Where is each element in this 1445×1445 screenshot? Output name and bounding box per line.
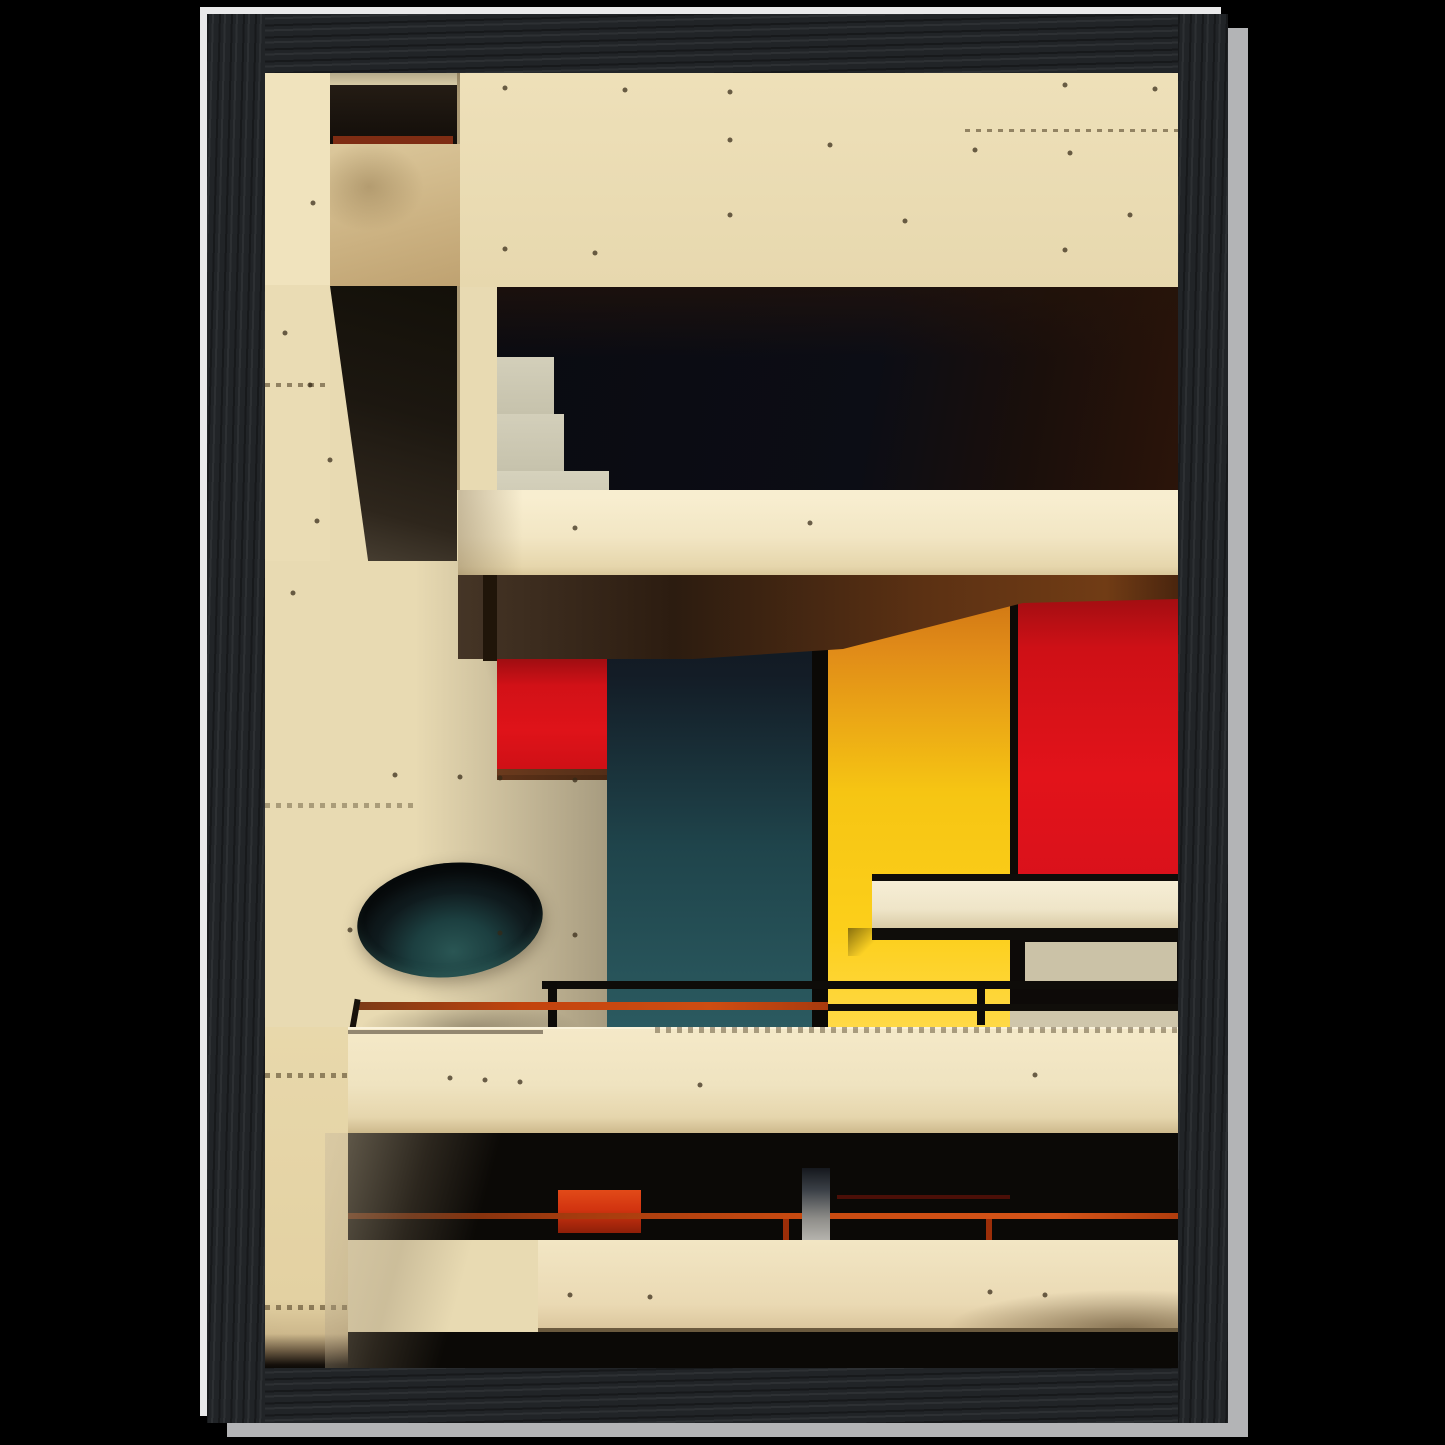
smoky-shadow-wedge [325,1133,515,1368]
parapet-block-grunge [330,144,460,286]
form-tie-hole [311,201,316,206]
beige-strip-right [1010,1011,1178,1027]
form-tie-hole [393,773,398,778]
form-tie-hole [1063,248,1068,253]
form-tie-hole [458,775,463,780]
floor-faint-red-line [837,1195,1010,1199]
railing-post-red [783,1219,789,1240]
form-tie-hole [483,1078,488,1083]
form-tie-hole [988,1290,993,1295]
form-tie-hole [348,928,353,933]
form-tie-hole [448,1076,453,1081]
form-tie-hole [291,591,296,596]
form-tie-hole [573,526,578,531]
artwork-print [265,73,1178,1368]
frame-rail-right [1178,14,1228,1423]
wall-crack-line [965,129,1178,132]
form-tie-hole [568,1293,573,1298]
railing-rust [358,1002,828,1010]
form-tie-hole [283,331,288,336]
concrete-pier-top-left [265,73,330,285]
form-tie-hole [308,383,313,388]
form-tie-hole [728,213,733,218]
pier-crack-line [265,383,330,387]
railing-post [977,981,985,1025]
window-band-opening [497,287,1178,490]
form-tie-hole [573,933,578,938]
form-tie-hole [648,1295,653,1300]
form-tie-hole [1033,1073,1038,1078]
form-tie-hole [573,778,578,783]
concrete-wall-upper [460,73,1178,287]
column-grime-line [265,1073,348,1078]
form-tie-hole [498,931,503,936]
white-awning [872,874,1178,940]
form-tie-hole [328,458,333,463]
wall-grime-line [265,803,415,808]
frame-rail-top [207,14,1228,73]
form-tie-hole [498,776,503,781]
form-tie-hole [1128,213,1133,218]
form-tie-hole [593,251,598,256]
awning-top-shadow [872,874,1178,881]
window-pane [497,357,554,414]
form-tie-hole [623,88,628,93]
awning-bottom-shadow [872,928,1178,940]
awning-bar [872,881,1178,928]
frame-rail-bottom [207,1368,1228,1423]
form-tie-hole [315,519,320,524]
product-photo-background [0,0,1445,1445]
parapet-band-lower [538,1240,1178,1332]
under-balcony-shadow-wedge [330,286,457,561]
form-tie-hole [518,1080,523,1085]
form-tie-hole [728,90,733,95]
parapet-grime-line [655,1027,1178,1033]
form-tie-hole [1153,87,1158,92]
form-tie-hole [1063,83,1068,88]
form-tie-hole [808,521,813,526]
frame-rail-left [207,14,265,1423]
opening-ceiling-shadow [497,287,1178,357]
parapet-band-upper [348,1027,1178,1133]
railing-black [542,981,1178,989]
railing-black-lower [828,1004,1178,1011]
form-tie-hole [728,138,733,143]
railing-post-red [986,1219,992,1240]
cream-slab-band [458,490,1178,575]
form-tie-hole [828,143,833,148]
red-utility-box [558,1190,641,1233]
concrete-pier-left [265,285,330,561]
picture-frame [207,14,1228,1423]
window-pane [497,414,564,471]
window-strip-right [1020,942,1177,985]
form-tie-hole [698,1083,703,1088]
form-tie-hole [903,219,908,224]
form-tie-hole [1068,151,1073,156]
balcony-rail-red [333,136,453,144]
concrete-pillar [802,1168,830,1240]
form-tie-hole [973,148,978,153]
form-tie-hole [503,247,508,252]
form-tie-hole [503,86,508,91]
form-tie-hole [1043,1293,1048,1298]
soffit-support [483,575,497,661]
